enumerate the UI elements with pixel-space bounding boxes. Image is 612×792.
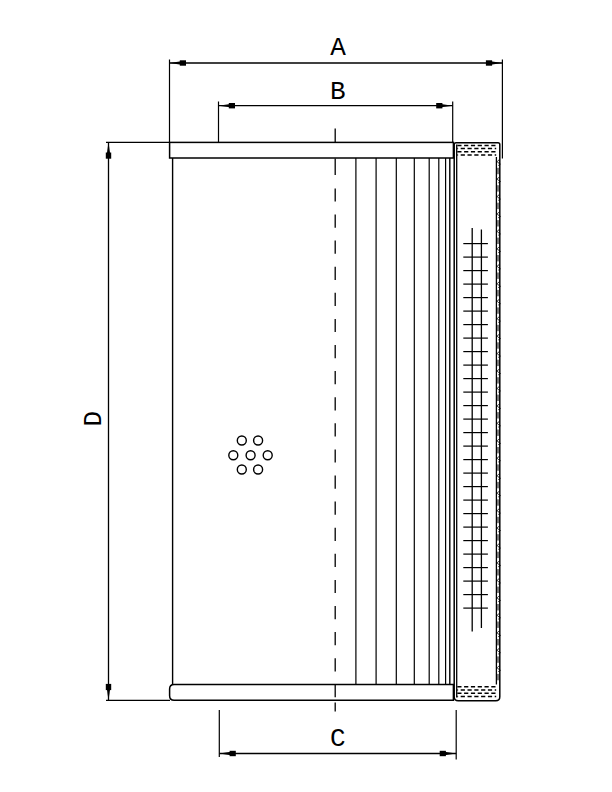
svg-text:A: A <box>330 33 346 63</box>
svg-text:D: D <box>79 411 109 427</box>
svg-text:B: B <box>330 77 346 107</box>
svg-text:C: C <box>330 724 346 754</box>
